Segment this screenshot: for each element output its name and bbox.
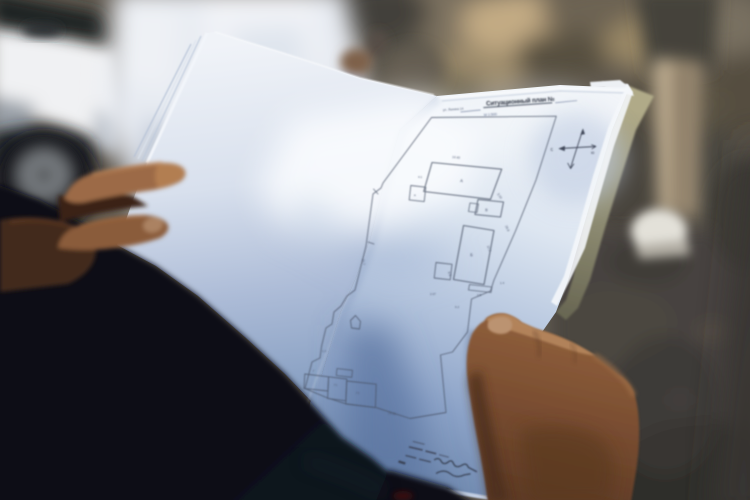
svg-text:Г2: Г2 <box>356 391 360 395</box>
svg-text:2.8: 2.8 <box>477 293 482 297</box>
svg-text:1.4: 1.4 <box>500 281 505 285</box>
svg-text:4.1: 4.1 <box>418 175 423 179</box>
svg-text:1.2: 1.2 <box>322 349 327 353</box>
svg-text:14.40: 14.40 <box>452 155 461 160</box>
svg-text:Г1: Г1 <box>334 383 338 387</box>
svg-text:2.07: 2.07 <box>430 292 436 296</box>
svg-text:6.2: 6.2 <box>455 305 460 309</box>
